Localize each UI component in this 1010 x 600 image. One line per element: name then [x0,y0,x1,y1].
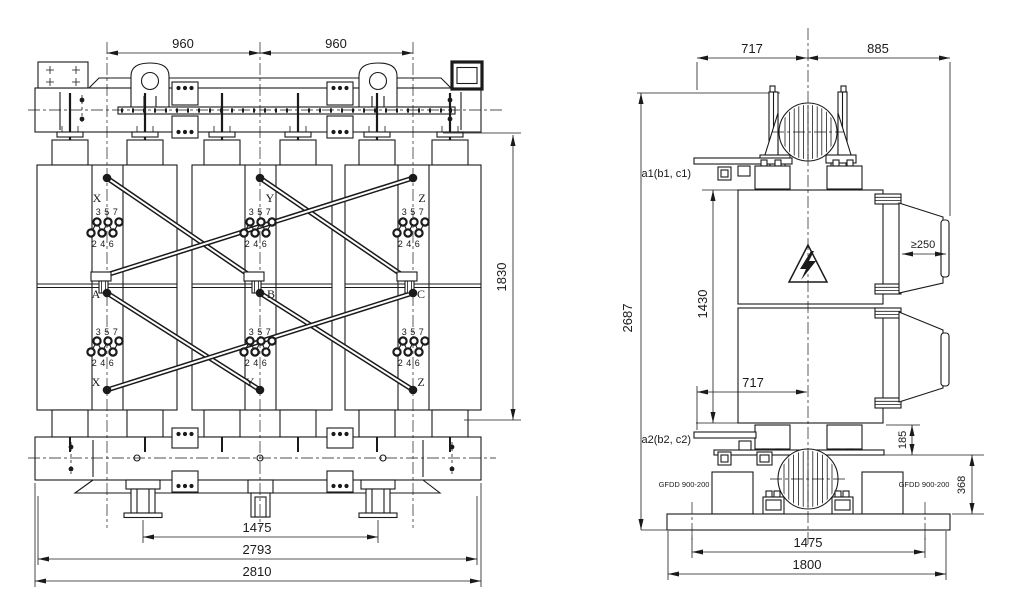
phase-b-bottom-terminal-label: Y [246,375,255,389]
dim-960-left: 960 [172,36,194,51]
dim-2687-overall-height: 2687 [620,304,635,333]
phase-b-upper-tap-odd: 3 5 7 [249,207,272,217]
dim-368-base-height: 368 [956,476,968,494]
phase-a-lower-tap-even: 2 4 6 [92,358,115,368]
phase-b-upper-tap-even: 2 4 6 [245,239,268,249]
jack-pad-center [248,480,273,517]
phase-c-lower-tap-even: 2 4 6 [398,358,421,368]
phase-a-lower-tap-odd: 3 5 7 [96,327,119,337]
phase-a-upper-tap-odd: 3 5 7 [96,207,119,217]
dim-2793-base-length: 2793 [243,542,272,557]
phase-b-lower-tap-even: 2 4 6 [245,358,268,368]
phase-b-top-terminal-label: Y [266,191,275,205]
left-bracket-box [38,62,88,88]
dim-1475-wheel-spacing: 1475 [243,520,272,535]
dim-885-top: 885 [867,41,889,56]
top-clamp-beam [35,62,482,140]
phase-b-lower-tap-odd: 3 5 7 [249,327,272,337]
hv-duct-lower [899,312,949,402]
roller-right [359,480,397,518]
phase-c-upper-tap-odd: 3 5 7 [402,207,425,217]
dim-717-top: 717 [741,41,763,56]
label-fan-model-left: GFDD 900-200 [659,480,710,489]
phase-c-bottom-terminal-label: Z [417,375,424,389]
phase-a-bottom-terminal-label: X [92,375,101,389]
dim-1430-body-height: 1430 [695,290,710,319]
dim-1475-side-wheel-spacing: 1475 [794,535,823,550]
label-lv-terminal-top: a1(b1, c1) [641,168,691,180]
dim-1830-height: 1830 [494,263,509,292]
dim-250-duct-depth: ≥250 [911,239,935,251]
cooling-fan-right [862,472,903,514]
dim-1800-base-width: 1800 [793,557,822,572]
phase-b-winding [192,165,332,410]
roller-left [124,480,162,518]
dim-717-bottom: 717 [742,375,764,390]
dim-960-right: 960 [325,36,347,51]
drawing-canvas: X Y Z 3 5 7 3 5 7 3 5 7 2 4 6 2 4 6 2 4 … [0,0,1010,600]
label-fan-model-right: GFDD 900-200 [899,480,950,489]
phase-a-mid-terminal-label: A [92,287,101,301]
label-lv-terminal-bottom: a2(b2, c2) [641,434,691,446]
phase-c-mid-terminal-label: C [417,287,425,301]
phase-c-top-terminal-label: Z [418,191,425,205]
phase-c-upper-tap-even: 2 4 6 [398,239,421,249]
dim-2810-overall-width: 2810 [243,564,272,579]
cooling-fan-left [712,472,753,514]
side-view [637,86,950,530]
side-base-channel [667,514,950,530]
phase-a-top-terminal-label: X [93,191,102,205]
phase-a-upper-tap-even: 2 4 6 [92,239,115,249]
phase-b-mid-terminal-label: B [267,287,275,301]
dim-185-clamp: 185 [897,431,909,449]
transformer-outline-drawing: X Y Z 3 5 7 3 5 7 3 5 7 2 4 6 2 4 6 2 4 … [0,0,1010,600]
phase-c-lower-tap-odd: 3 5 7 [402,327,425,337]
